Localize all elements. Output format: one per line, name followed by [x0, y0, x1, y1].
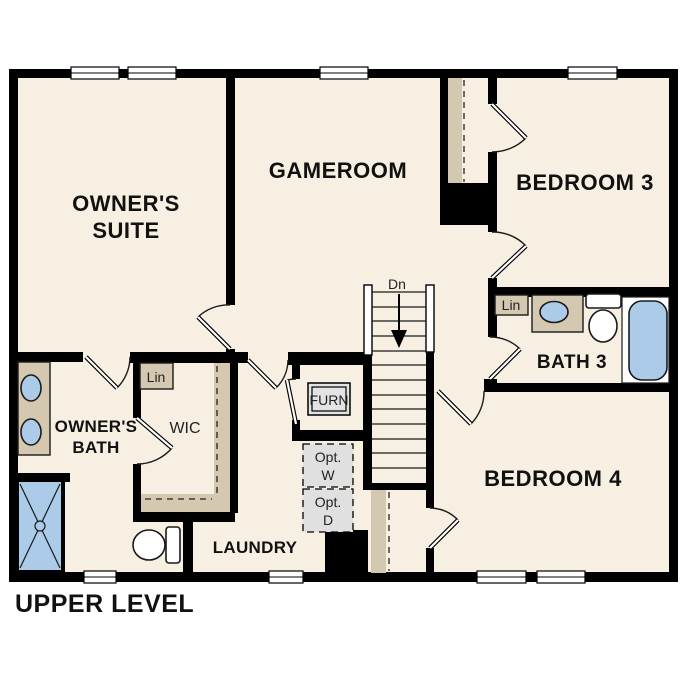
sink-icon — [21, 375, 41, 401]
bedroom3-label: BEDROOM 3 — [516, 170, 654, 195]
wic-linen-label: Lin — [147, 369, 166, 385]
owners-bath-label-line2: BATH — [72, 438, 119, 457]
window — [320, 67, 368, 79]
optional-washer: Opt. W — [303, 444, 353, 487]
bathtub-icon — [622, 297, 669, 383]
window — [71, 67, 119, 79]
window — [537, 571, 585, 583]
stairs-dn-label: Dn — [388, 276, 406, 292]
window — [477, 571, 526, 583]
stair-rail-left — [364, 285, 372, 355]
gameroom-label: GAMEROOM — [269, 158, 407, 183]
furnace-unit: FURN — [308, 383, 350, 415]
window — [269, 571, 303, 583]
wic-label: WIC — [169, 420, 200, 437]
stair-rail-right — [426, 285, 434, 352]
bedroom4-label: BEDROOM 4 — [484, 466, 622, 491]
sink-icon — [540, 302, 568, 323]
owners-bath-label-line1: OWNER'S — [55, 417, 138, 436]
bath3-label: BATH 3 — [537, 352, 607, 373]
bedroom3-closet-shelf — [448, 78, 462, 183]
window — [84, 571, 116, 583]
floorplan-page: Dn — [0, 0, 687, 687]
opt-washer-label-line2: W — [321, 467, 335, 483]
owners-suite-label-line1: OWNER'S — [72, 191, 180, 216]
optional-dryer: Opt. D — [303, 489, 353, 532]
laundry-label: LAUNDRY — [213, 538, 298, 557]
bath3-linen-label: Lin — [502, 297, 521, 313]
window — [128, 67, 176, 79]
page-title: UPPER LEVEL — [15, 590, 194, 618]
shower-icon — [17, 480, 63, 572]
understair-closet-shelf — [371, 490, 386, 573]
floorplan-drawing: Dn — [0, 0, 687, 687]
wic-shelf-bottom — [141, 494, 230, 512]
owners-suite-label-line2: SUITE — [92, 218, 159, 243]
toilet-icon — [133, 527, 180, 563]
furnace-label: FURN — [310, 392, 349, 408]
opt-washer-label-line1: Opt. — [315, 449, 341, 465]
window — [568, 67, 617, 79]
opt-dryer-label-line2: D — [323, 512, 333, 528]
opt-dryer-label-line1: Opt. — [315, 494, 341, 510]
sink-icon — [21, 419, 41, 445]
